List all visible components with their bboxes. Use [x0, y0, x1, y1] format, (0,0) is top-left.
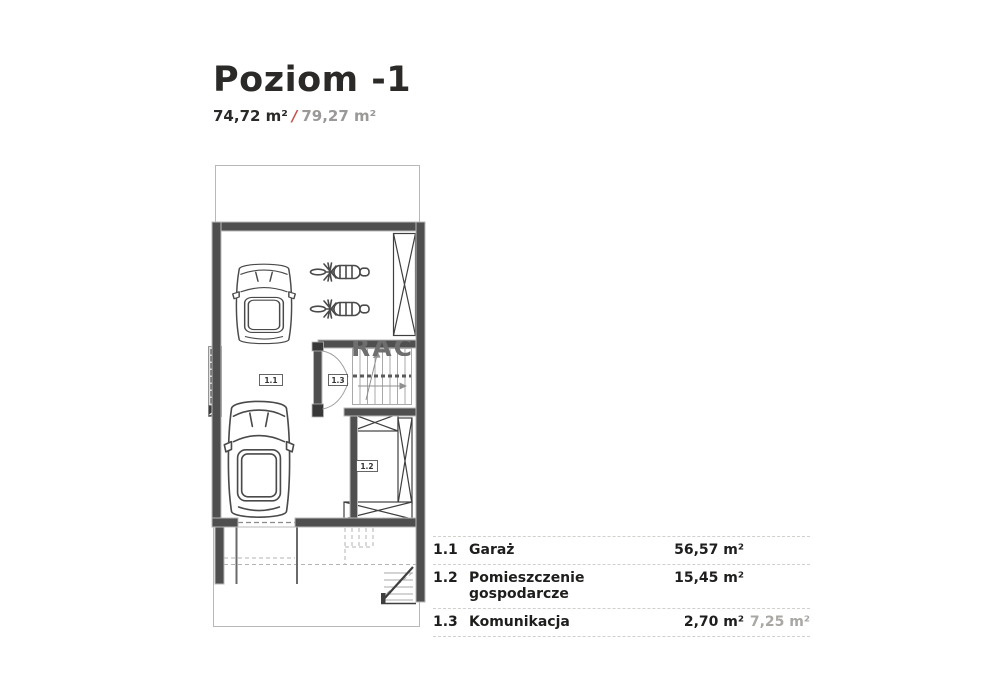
legend-row: 1.3 Komunikacja 2,70 m² 7,25 m² — [433, 609, 810, 637]
car-icon-bottom — [224, 401, 293, 517]
wall-bottom-left — [212, 518, 238, 527]
staircase — [353, 349, 412, 405]
wall-middle — [314, 344, 323, 410]
room-label-komunikacja: 1.3 — [331, 376, 344, 385]
driveway-division-lines — [237, 527, 298, 584]
legend-room-name: Komunikacja — [469, 614, 652, 630]
room-label-garage: 1.1 — [264, 376, 277, 385]
wall-stair-bottom — [344, 408, 416, 416]
exterior-stairs — [381, 567, 416, 604]
wall-bottom-right — [295, 518, 416, 527]
motorcycle-icon-top — [311, 263, 370, 281]
legend-room-number: 1.3 — [433, 614, 469, 630]
floorplan-page: Poziom -1 74,72 m²/79,27 m² — [0, 0, 986, 690]
legend-room-name: Pomieszczenie gospodarcze — [469, 570, 652, 602]
car-icon-top — [233, 264, 296, 343]
legend-table: 1.1 Garaż 56,57 m² 1.2 Pomieszczenie gos… — [433, 536, 810, 637]
legend-room-area: 56,57 m² — [652, 542, 744, 558]
wall-stub-left — [215, 527, 224, 584]
legend-row: 1.1 Garaż 56,57 m² — [433, 536, 810, 565]
wall-left — [212, 222, 221, 527]
ramp-dashed-lines — [224, 523, 419, 565]
wall-top — [212, 222, 425, 231]
legend-row: 1.2 Pomieszczenie gospodarcze 15,45 m² — [433, 565, 810, 609]
column-middle-bottom — [312, 404, 324, 417]
column-middle-top — [312, 342, 324, 351]
legend-room-area: 2,70 m² — [652, 614, 744, 630]
motorcycle-icon-bottom — [311, 300, 370, 318]
legend-room-number: 1.1 — [433, 542, 469, 558]
driveway-outline — [214, 527, 420, 627]
legend-room-area: 15,45 m² — [652, 570, 744, 586]
stair-arrow-right — [400, 383, 408, 390]
legend-room-name: Garaż — [469, 542, 652, 558]
wall-right — [416, 222, 425, 602]
legend-room-number: 1.2 — [433, 570, 469, 586]
terrace-outline — [216, 166, 420, 223]
shaft-cross — [394, 234, 416, 336]
room-label-storage: 1.2 — [360, 462, 373, 471]
legend-room-area-secondary: 7,25 m² — [744, 614, 810, 630]
